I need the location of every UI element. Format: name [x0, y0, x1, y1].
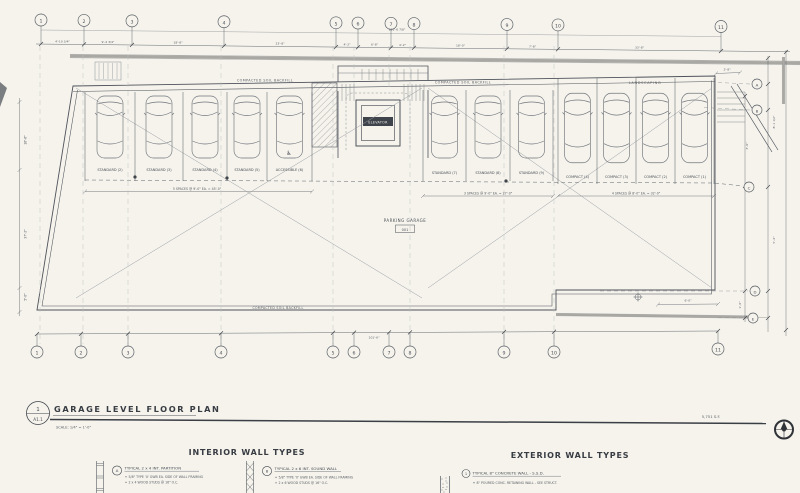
spaces-dim-left: 5 SPACES @ 9'-0" EA. = 45'-0" — [173, 187, 222, 191]
grid-bubble-bottom-label: 5 — [332, 351, 335, 357]
wall-section-sketch-b — [247, 461, 254, 493]
wall-section-sketch-a — [97, 461, 104, 493]
dim-text-right: 5'-4" — [772, 236, 776, 244]
grid-bubble-top-label: 9 — [506, 23, 509, 29]
wall-type-b-tag: B — [266, 469, 269, 474]
dim-text-left: 16'-6" — [24, 135, 28, 145]
drawing-title: GARAGE LEVEL FLOOR PLAN — [54, 404, 220, 414]
soil-backfill-label-bottom: COMPACTED SOIL BACKFILL — [252, 306, 303, 310]
wall-type-b-title: TYPICAL 2 x 6 INT. SOUND WALL — [274, 466, 338, 471]
dim-text-bottom: 101'-6" — [369, 336, 381, 340]
stall-label: STANDARD (9) — [519, 171, 545, 175]
stall-label: COMPACT (1) — [683, 175, 707, 179]
car-outline — [275, 96, 305, 158]
car-outline — [95, 96, 125, 158]
elevator-label: ELEVATOR — [368, 121, 388, 125]
landscaping-label: LANDSCAPING — [629, 81, 662, 85]
car-outline — [430, 96, 460, 158]
grid-bubble-row-label: C — [748, 185, 751, 190]
grid-bubble-top-label: 2 — [83, 19, 86, 25]
spaces-dim-mid: 3 SPACES @ 9'-0" EA. = 27'-0" — [464, 191, 513, 195]
spaces-dim-right: 4 SPACES @ 8'-0" EA. = 32'-0" — [612, 191, 661, 195]
car-outline — [232, 96, 262, 158]
dim-text-top: 18'-0" — [456, 44, 466, 48]
grid-bubble-top-label: 11 — [718, 25, 724, 31]
dim-text-top: 18'-8" — [173, 41, 183, 45]
north-arrow-icon — [775, 420, 794, 439]
hatched-wall-block — [312, 83, 337, 147]
wall-type-a-note: 5/8" TYPE 'X' GWB EA. SIDE OF WALL FRAMI… — [129, 475, 204, 479]
wall-type-1-title: TYPICAL 8" CONCRETE WALL - S.S.D. — [472, 471, 544, 476]
drawing-scale: SCALE: 1/4" = 1'-0" — [56, 426, 91, 430]
stall-label: COMPACT (3) — [605, 175, 629, 179]
garage-floor-plan-drawing: 12345678910114'-10 3/4"9'-2 3/4"18'-8"23… — [0, 0, 800, 493]
dim-text-left: 37'-2" — [24, 229, 28, 239]
stall-label: STANDARD (5) — [234, 168, 260, 172]
room-number-label: 001 — [402, 228, 409, 232]
wall-type-b-note: 5/8" TYPE 'X' GWB EA. SIDE OF WALL FRAMI… — [279, 476, 354, 480]
grid-bubble-top-label: 3 — [131, 20, 134, 26]
stall-label: COMPACT (2) — [644, 175, 668, 179]
soil-backfill-label-right: COMPACTED SOIL BACKFILL — [435, 81, 491, 85]
wall-type-1-note: 8" POURED CONC. RETAINING WALL - SEE STR… — [477, 481, 558, 485]
dim-text-right: 2'-8" — [723, 68, 731, 72]
wall-type-a-tag: A — [116, 468, 119, 473]
dim-text-top: 4'-2" — [399, 43, 407, 47]
car-outline — [563, 93, 593, 162]
dim-text-bottom: 6'-0" — [684, 299, 692, 303]
grid-bubble-top-label: 1 — [40, 19, 43, 25]
detail-number: 1 — [36, 407, 40, 413]
grid-bubble-bottom-label: 6 — [353, 351, 356, 357]
wall-section-sketch-concrete — [441, 476, 450, 493]
annotation-texts: 101'-6 7/8" COMPACTED SOIL BACKFILL COMP… — [24, 28, 777, 486]
stall-label: ACCESSIBLE (6) — [276, 168, 304, 172]
dim-text-top: 33'-8" — [635, 45, 645, 49]
grid-bubble-row-label: A — [756, 82, 759, 87]
grid-bubble-bottom-label: 3 — [127, 351, 130, 357]
dim-text-top: 7'-8" — [529, 44, 537, 48]
dim-text-right: 3'-0" — [745, 142, 749, 150]
dim-text-top: 6'-8" — [371, 43, 379, 47]
stall-label: STANDARD (3) — [146, 168, 172, 172]
stall-label: STANDARD (4) — [192, 168, 218, 172]
room-name-label: PARKING GARAGE — [384, 218, 427, 223]
grid-bubble-row-label: B — [756, 108, 759, 113]
overall-dim-text: 101'-6 7/8" — [389, 28, 406, 32]
car-outline — [144, 96, 174, 158]
dim-text-right: 1'-6" — [738, 301, 742, 309]
grid-bubble-bottom-label: 2 — [80, 351, 83, 357]
wall-type-b-note: 2 x 6 WOOD STUDS @ 16" O.C. — [279, 481, 329, 485]
stall-label: COMPACT (4) — [566, 175, 590, 179]
exterior-wall-types-heading: EXTERIOR WALL TYPES — [511, 451, 630, 460]
grid-bubble-bottom-label: 10 — [551, 351, 557, 357]
sheet-number: A1.1 — [33, 417, 43, 422]
wall-type-a-title: TYPICAL 2 x 4 INT. PARTITION — [124, 466, 182, 471]
stall-label: STANDARD (8) — [475, 171, 501, 175]
dim-text-top: 9'-2 3/4" — [102, 40, 116, 44]
dim-text-top: 4'-10 3/4" — [55, 39, 70, 43]
grid-bubble-bottom-label: 7 — [388, 351, 391, 357]
stall-label: STANDARD (7) — [432, 171, 458, 175]
grid-bubble-top-label: 8 — [413, 22, 416, 28]
grid-bubble-bottom-label: 9 — [503, 351, 506, 357]
scan-artifact — [0, 82, 7, 107]
grid-bubble-top-label: 6 — [357, 22, 360, 28]
car-outline — [602, 93, 632, 162]
dim-text-left: 5'-0" — [24, 293, 28, 301]
car-outline — [473, 96, 503, 158]
dim-text-right: 8'-1 1/2" — [772, 115, 776, 129]
grid-bubble-row-label: D — [754, 289, 757, 294]
plan-linework — [0, 30, 800, 493]
grid-bubble-bottom-label: 8 — [409, 351, 412, 357]
car-outline — [190, 96, 220, 158]
soil-backfill-label-left: COMPACTED SOIL BACKFILL — [237, 79, 293, 83]
car-outline — [517, 96, 547, 158]
car-outline — [680, 93, 710, 162]
area-label: 5,751 S.F. — [702, 414, 720, 419]
wall-type-1-tag: 1 — [465, 472, 467, 476]
stall-label: STANDARD (2) — [97, 168, 123, 172]
grid-bubble-top-label: 4 — [223, 20, 226, 26]
dim-text-top: 4'-2" — [343, 42, 351, 46]
grid-bubble-top-label: 5 — [335, 22, 338, 28]
dim-text-top: 23'-8" — [275, 42, 285, 46]
grid-bubble-bottom-label: 4 — [220, 351, 223, 357]
accessible-parking-icon: ♿ — [286, 150, 291, 157]
grid-bubble-bottom-label: 11 — [715, 348, 721, 354]
interior-wall-types-heading: INTERIOR WALL TYPES — [189, 448, 306, 457]
wall-type-a-note: 2 x 4 WOOD STUDS @ 16" O.C. — [129, 481, 179, 485]
grid-bubble-top-label: 10 — [555, 24, 561, 30]
drawing-sheet: 12345678910114'-10 3/4"9'-2 3/4"18'-8"23… — [0, 0, 800, 493]
grid-bubble-bottom-label: 1 — [36, 351, 39, 357]
